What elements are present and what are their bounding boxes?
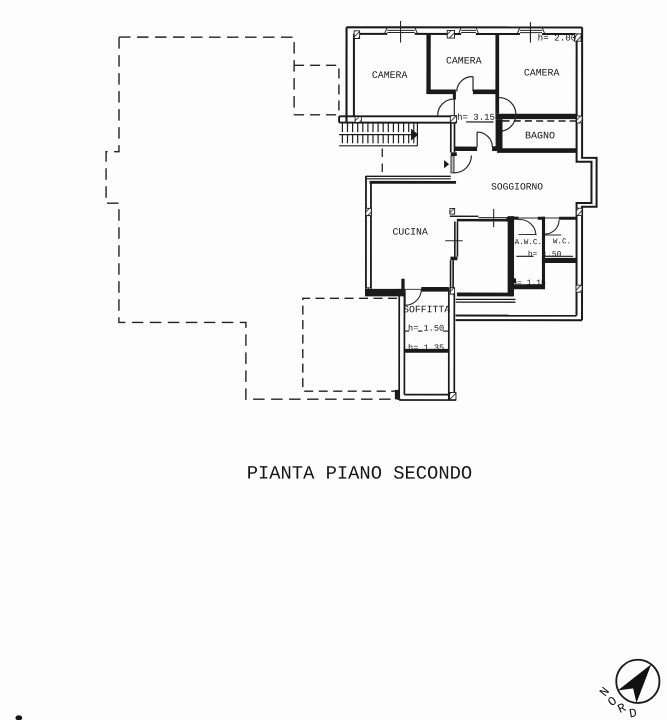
svg-text:R: R [616,701,629,717]
svg-text:CUCINA: CUCINA [393,227,428,238]
svg-text:h= 1.50: h= 1.50 [408,324,444,334]
svg-text:PIANTA PIANO SECONDO: PIANTA PIANO SECONDO [247,463,472,485]
svg-text:CAMERA: CAMERA [446,55,482,66]
svg-text:h= 2.00: h= 2.00 [538,32,577,43]
svg-text:h= 1.50: h= 1.50 [528,250,562,259]
svg-text:A.W.C.: A.W.C. [515,239,542,247]
svg-text:W.C.: W.C. [553,238,571,246]
svg-text:D: D [628,706,638,720]
svg-text:h= 1.15: h= 1.15 [512,279,546,288]
svg-text:SOGGIORNO: SOGGIORNO [491,181,543,192]
svg-text:h= 3.15: h= 3.15 [457,113,495,123]
svg-text:CAMERA: CAMERA [372,70,408,81]
svg-text:SOFFITTA: SOFFITTA [403,304,450,315]
svg-text:CAMERA: CAMERA [524,67,560,78]
svg-text:h= 1.35: h= 1.35 [408,343,444,353]
svg-text:BAGNO: BAGNO [525,131,555,142]
